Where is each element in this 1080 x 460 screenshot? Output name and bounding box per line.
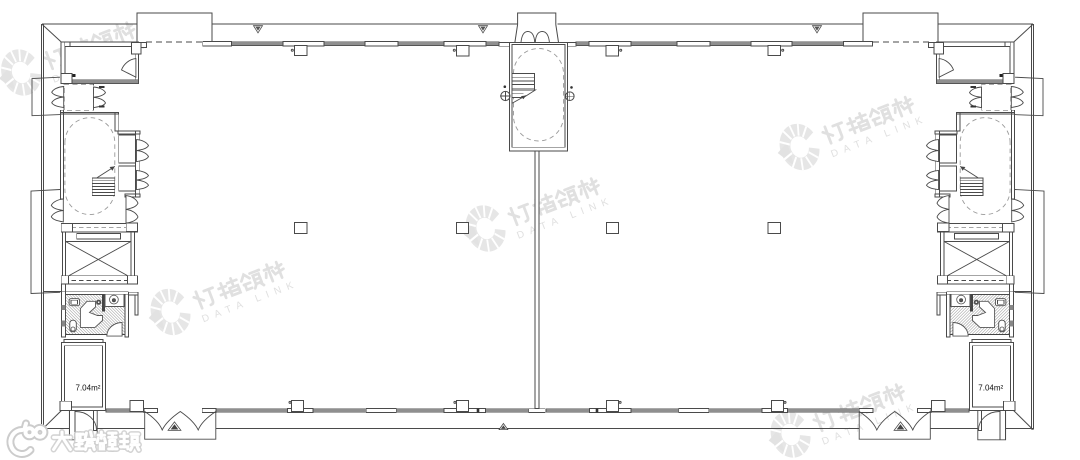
svg-text:7.04m²: 7.04m² [76,384,101,393]
svg-text:7.04m²: 7.04m² [978,384,1003,393]
